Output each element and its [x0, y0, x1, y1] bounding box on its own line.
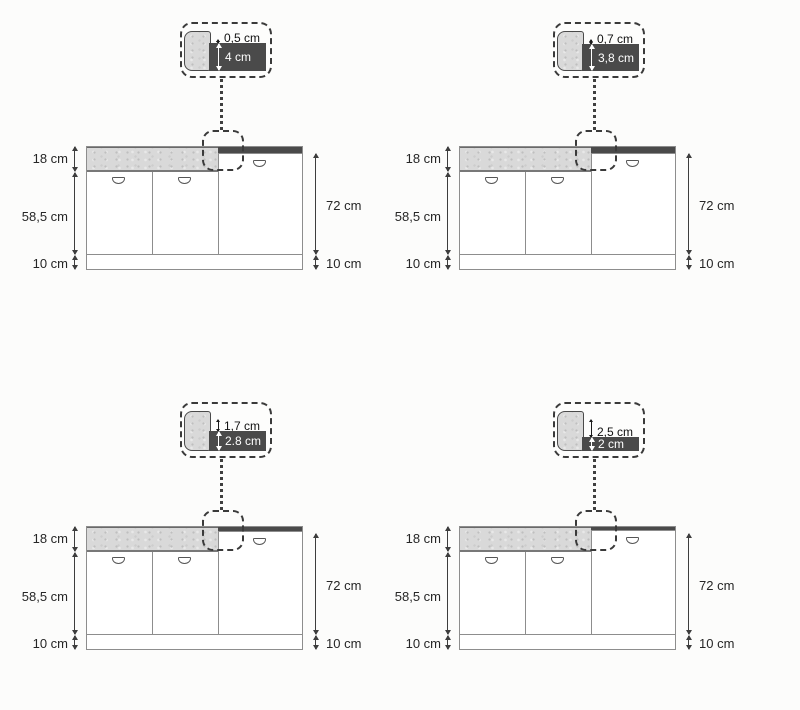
dim-line-doors: [74, 173, 75, 254]
dim-line-right-height: [315, 154, 316, 254]
dim-right-height-label: 72 cm: [699, 199, 734, 212]
dim-right-height-label: 72 cm: [326, 579, 361, 592]
cabinet-left-doors: [87, 172, 218, 255]
dim-plinth-left-label: 10 cm: [383, 257, 441, 270]
dim-doors-label: 58,5 cm: [2, 210, 68, 223]
step-gap: 2,5 cm: [582, 420, 639, 438]
countertop-edge-profile: [557, 411, 584, 451]
detail-callout: 2,5 cm 2 cm: [553, 402, 645, 458]
dim-line-plinth-left: [74, 636, 75, 649]
kitchen-cabinet: [86, 526, 303, 650]
thick-worktop-band: [460, 147, 591, 172]
thickness-dimension-label: 3,8 cm: [598, 52, 634, 64]
dim-line-doors: [74, 553, 75, 634]
dim-line-top-section: [447, 147, 448, 171]
dim-top-section-label: 18 cm: [383, 152, 441, 165]
callout-stack: 1,7 cm 2.8 cm: [209, 420, 266, 451]
detail-callout: 1,7 cm 2.8 cm: [180, 402, 272, 458]
dim-line-doors: [447, 173, 448, 254]
countertop-edge-profile: [557, 31, 584, 71]
worktop-cross-section: 3,8 cm: [582, 44, 639, 71]
dim-line-top-section: [74, 527, 75, 551]
thickness-dimension-label: 2.8 cm: [225, 435, 261, 447]
worktop-cross-section: 4 cm: [209, 43, 266, 71]
callout-connector-line: [593, 454, 596, 510]
cabinet-door: [525, 552, 591, 635]
door-handle-icon: [485, 557, 498, 564]
dim-line-plinth-left: [447, 636, 448, 649]
thickness-dimension-arrow-icon: [218, 44, 219, 70]
door-handle-icon: [112, 557, 125, 564]
worktop-diagram-4: 2,5 cm 2 cm: [373, 380, 746, 710]
door-handle-icon: [178, 177, 191, 184]
dim-line-plinth-right: [315, 256, 316, 269]
plinth: [460, 634, 675, 649]
door-handle-icon: [253, 160, 266, 167]
dim-line-top-section: [74, 147, 75, 171]
junction-highlight: [202, 510, 244, 551]
kitchen-cabinet: [86, 146, 303, 270]
cabinet-door: [87, 552, 152, 635]
dim-line-plinth-right: [688, 636, 689, 649]
callout-connector-line: [593, 74, 596, 130]
cabinet-door: [460, 172, 525, 255]
cabinet-left-doors: [460, 172, 591, 255]
worktop-diagram-3: 1,7 cm 2.8 cm: [0, 380, 373, 710]
step-dimension-arrow-icon: [591, 420, 592, 438]
junction-highlight: [575, 130, 617, 171]
dim-plinth-left-label: 10 cm: [10, 637, 68, 650]
dim-line-right-height: [688, 154, 689, 254]
dim-plinth-right-label: 10 cm: [699, 637, 734, 650]
dim-doors-label: 58,5 cm: [375, 590, 441, 603]
thickness-dimension-label: 4 cm: [225, 51, 251, 63]
countertop-edge-profile: [184, 31, 211, 71]
dim-plinth-right-label: 10 cm: [326, 637, 361, 650]
door-handle-icon: [112, 177, 125, 184]
dim-right-height-label: 72 cm: [326, 199, 361, 212]
dim-doors-label: 58,5 cm: [2, 590, 68, 603]
plinth: [87, 254, 302, 269]
cabinet-door: [525, 172, 591, 255]
dim-top-section-label: 18 cm: [10, 152, 68, 165]
dim-plinth-left-label: 10 cm: [383, 637, 441, 650]
junction-highlight: [202, 130, 244, 171]
cabinet-door: [152, 172, 218, 255]
worktop-diagram-2: 0,7 cm 3,8 cm: [373, 0, 746, 330]
junction-highlight: [575, 510, 617, 551]
plinth: [87, 634, 302, 649]
dim-top-section-label: 18 cm: [10, 532, 68, 545]
callout-stack: 2,5 cm 2 cm: [582, 420, 639, 452]
cabinet-left-doors: [87, 552, 218, 635]
dim-line-doors: [447, 553, 448, 634]
countertop-edge-profile: [184, 411, 211, 451]
dim-line-right-height: [315, 534, 316, 634]
dim-line-plinth-right: [688, 256, 689, 269]
dim-doors-label: 58,5 cm: [375, 210, 441, 223]
door-handle-icon: [626, 537, 639, 544]
dim-line-plinth-right: [315, 636, 316, 649]
callout-connector-line: [220, 74, 223, 130]
step-gap: 1,7 cm: [209, 420, 266, 432]
thickness-dimension-arrow-icon: [218, 432, 219, 450]
callout-connector-line: [220, 454, 223, 510]
dim-right-height-label: 72 cm: [699, 579, 734, 592]
thickness-dimension-arrow-icon: [591, 45, 592, 70]
kitchen-cabinet: [459, 526, 676, 650]
callout-stack: 0,5 cm 4 cm: [209, 40, 266, 72]
door-handle-icon: [178, 557, 191, 564]
diagram-grid: 0,5 cm 4 cm: [0, 0, 800, 706]
cabinet-door: [152, 552, 218, 635]
door-handle-icon: [485, 177, 498, 184]
worktop-cross-section: 2 cm: [582, 437, 639, 451]
plinth: [460, 254, 675, 269]
callout-stack: 0,7 cm 3,8 cm: [582, 40, 639, 71]
door-handle-icon: [626, 160, 639, 167]
worktop-cross-section: 2.8 cm: [209, 431, 266, 451]
thick-worktop-band: [87, 147, 218, 172]
door-handle-icon: [551, 557, 564, 564]
door-handle-icon: [253, 538, 266, 545]
thickness-dimension-label: 2 cm: [598, 438, 624, 450]
worktop-diagram-1: 0,5 cm 4 cm: [0, 0, 373, 330]
cabinet-door: [87, 172, 152, 255]
detail-callout: 0,5 cm 4 cm: [180, 22, 272, 78]
thick-worktop-band: [460, 527, 591, 552]
dim-plinth-right-label: 10 cm: [699, 257, 734, 270]
dim-plinth-right-label: 10 cm: [326, 257, 361, 270]
dim-plinth-left-label: 10 cm: [10, 257, 68, 270]
door-handle-icon: [551, 177, 564, 184]
detail-callout: 0,7 cm 3,8 cm: [553, 22, 645, 78]
cabinet-door: [460, 552, 525, 635]
thick-worktop-band: [87, 527, 218, 552]
cabinet-left-doors: [460, 552, 591, 635]
dim-line-plinth-left: [74, 256, 75, 269]
step-dimension-arrow-icon: [218, 420, 219, 432]
dim-line-plinth-left: [447, 256, 448, 269]
dim-line-top-section: [447, 527, 448, 551]
dim-top-section-label: 18 cm: [383, 532, 441, 545]
thickness-dimension-arrow-icon: [591, 438, 592, 450]
dim-line-right-height: [688, 534, 689, 634]
kitchen-cabinet: [459, 146, 676, 270]
